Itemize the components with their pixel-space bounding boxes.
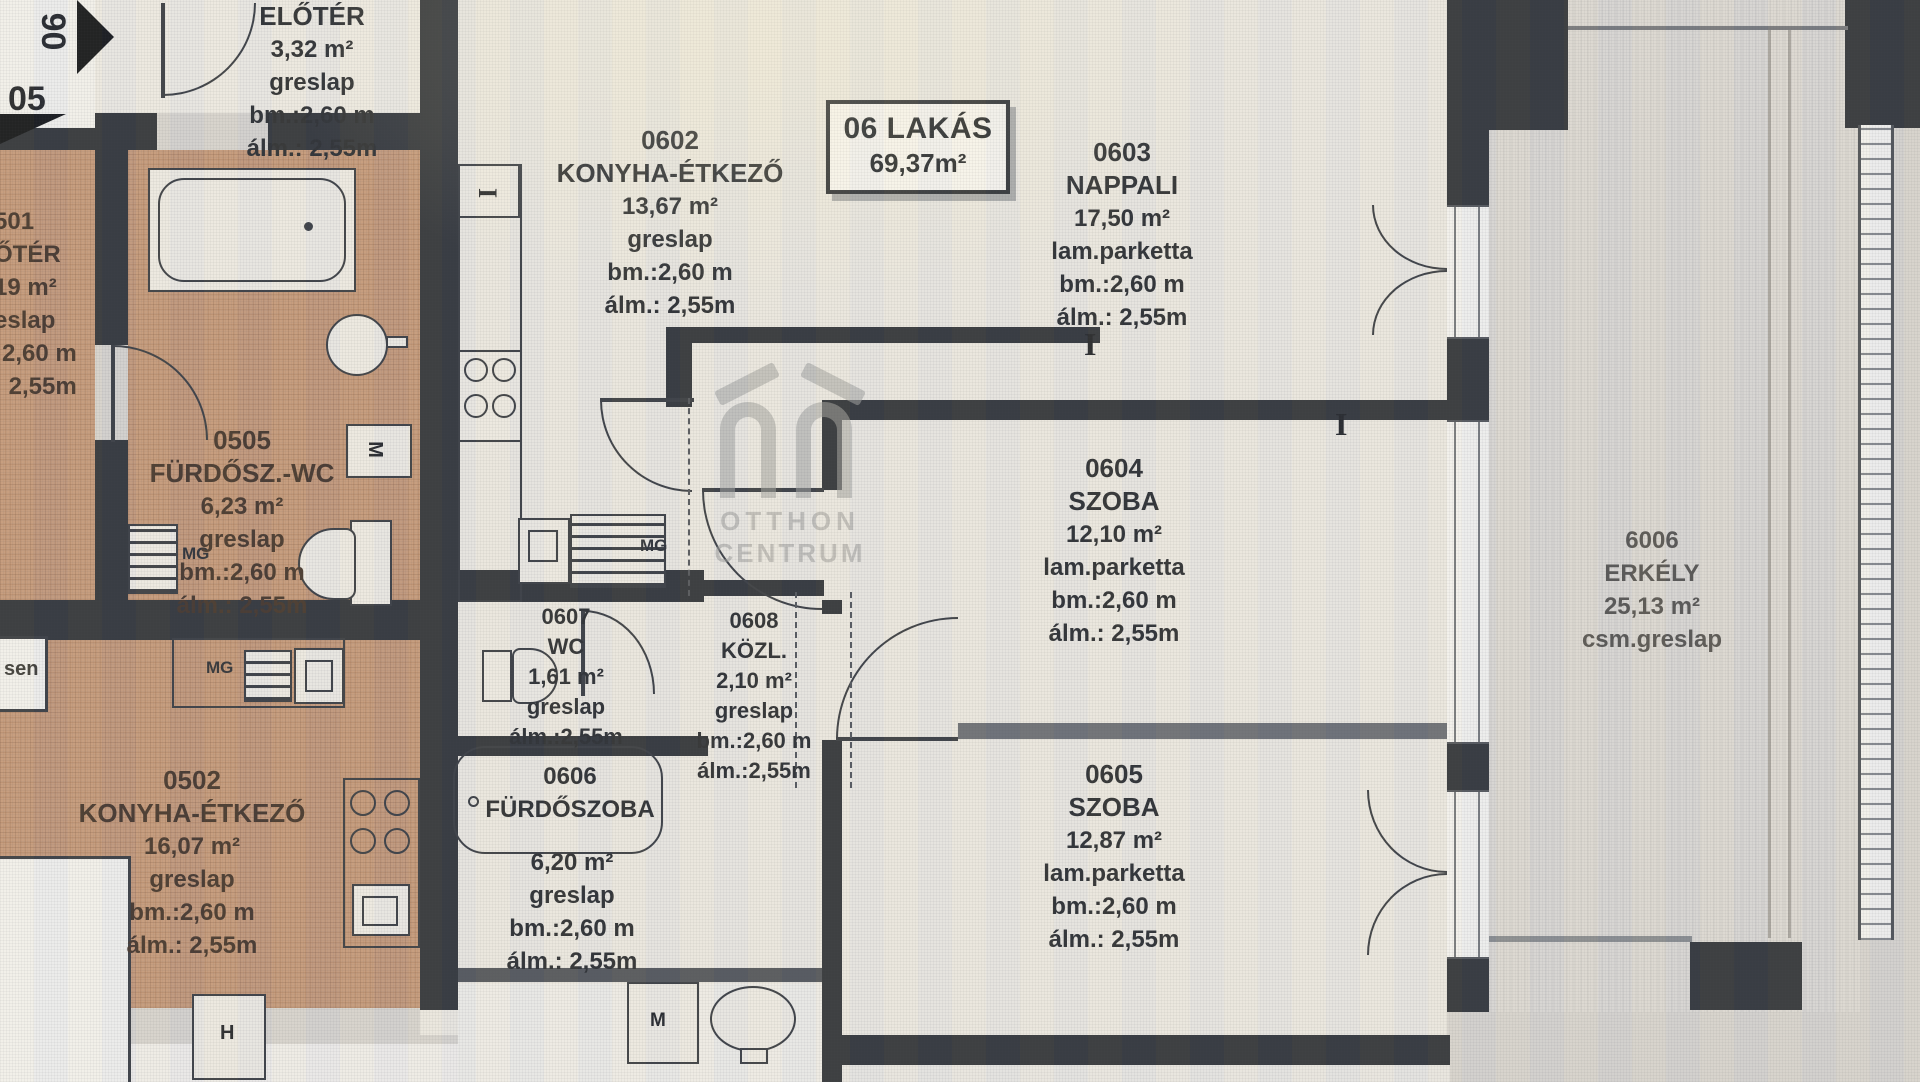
room-label-0602: 0602 KONYHA-ÉTKEZŐ 13,67 m² greslap bm.:… (557, 124, 784, 322)
room-code-partial: 501 (0, 205, 77, 238)
room-area: 12,10 m² (1043, 518, 1184, 551)
room-floor: greslap (150, 523, 335, 556)
room-name: ERKÉLY (1582, 557, 1722, 590)
wall-left-upper (95, 150, 128, 345)
room-label-0606-details: 6,20 m² greslap bm.:2,60 m álm.: 2,55m (507, 846, 638, 978)
room-floor-partial: eslap (0, 304, 77, 337)
wall-0605-west (822, 740, 842, 1082)
room-floor: greslap (79, 863, 306, 896)
balcony-railing (1858, 125, 1894, 940)
room-label-0501-partial: 501 ŐTÉR 19 m² eslap :2,60 m : 2,55m (0, 205, 77, 403)
room-code: 0604 (1043, 452, 1184, 485)
room-area: 6,20 m² (507, 846, 638, 879)
room-code: 0603 (1051, 136, 1192, 169)
room-bm: bm.:2,60 m (507, 912, 638, 945)
room-code: 0607 (509, 602, 623, 632)
burner-0602-4 (492, 394, 516, 418)
balcony-top-line (1568, 26, 1848, 30)
burner-0502-3 (350, 828, 376, 854)
balcony-rail-line-b (1788, 30, 1791, 938)
room-bm: bm.:2,60 m (697, 726, 812, 756)
room-floor: lam.parketta (1043, 551, 1184, 584)
room-name: ELŐTÉR (247, 0, 378, 33)
wall-right-4 (1447, 955, 1489, 1012)
sink-unit-0602-basin (528, 530, 558, 562)
room-label-0608: 0608 KÖZL. 2,10 m² greslap bm.:2,60 m ál… (697, 606, 812, 786)
bathtub-drain-dot (304, 222, 313, 231)
room-bm: bm.:2,60 m (150, 556, 335, 589)
room-name: KONYHA-ÉTKEZŐ (79, 797, 306, 830)
room-code: 0606 (485, 760, 654, 793)
room-floor: greslap (247, 66, 378, 99)
toilet-0607-tank (482, 650, 512, 702)
room-alm: álm.: 2,55m (507, 945, 638, 978)
wall-right-3 (1447, 740, 1489, 790)
room-name: KONYHA-ÉTKEZŐ (557, 157, 784, 190)
room-bm: bm.:2,60 m (1043, 890, 1184, 923)
wall-entry-left (95, 113, 157, 150)
sink-0505 (326, 314, 388, 376)
room-code: 0505 (150, 424, 335, 457)
window-mid (1447, 420, 1489, 744)
watermark-logo-arch-c (796, 402, 852, 498)
fridge-i-glyph: I (472, 188, 502, 198)
room-label-0505: 0505 FÜRDŐSZ.-WC 6,23 m² greslap bm.:2,6… (150, 424, 335, 622)
wall-band-upper (666, 327, 1100, 343)
room-name: SZOBA (1043, 791, 1184, 824)
wall-kitchen-column (420, 0, 458, 1010)
floor-bottom-strip-right (837, 1065, 1450, 1082)
room-name: KÖZL. (697, 636, 812, 666)
wall-0605-bottom (837, 1035, 1450, 1065)
i-beam-symbol-b: I (1335, 406, 1347, 443)
washer-m-glyph-0606: M (650, 1010, 666, 1032)
room-area: 16,07 m² (79, 830, 306, 863)
toilet-0505-tank (350, 520, 392, 606)
room-area: 3,32 m² (247, 33, 378, 66)
room-alm: álm.:2,55m (509, 722, 623, 752)
room-floor: lam.parketta (1043, 857, 1184, 890)
unit-title: 06 LAKÁS (830, 112, 1006, 146)
mg-label-0602: MG (640, 536, 667, 556)
room-label-0607: 0607 WC 1,61 m² greslap álm.:2,55m (509, 602, 623, 752)
room-alm: álm.: 2,55m (247, 132, 378, 165)
pillar-top-right-corner (1845, 0, 1920, 128)
room-area-partial: 19 m² (0, 271, 77, 304)
sink-0505-tap (386, 336, 408, 348)
room-name: FÜRDŐSZOBA (485, 793, 654, 826)
sink-0606-oval (710, 986, 796, 1052)
room-name: NAPPALI (1051, 169, 1192, 202)
room-floor: csm.greslap (1582, 623, 1722, 656)
room-area: 1,61 m² (509, 662, 623, 692)
sink-unit-0502-basin (305, 660, 333, 692)
room-label-eloter06: ELŐTÉR 3,32 m² greslap bm.:2,60 m álm.: … (247, 0, 378, 165)
floor-balcony (1489, 0, 1862, 1012)
room-code: 0502 (79, 764, 306, 797)
sink-0606-stub (740, 1048, 768, 1064)
watermark-chevron-left (714, 362, 780, 406)
burner-0602-2 (492, 358, 516, 382)
room-bm: bm.:2,60 m (557, 256, 784, 289)
room-bm: bm.:2,60 m (1051, 268, 1192, 301)
opening-dashed-kozl-b (850, 592, 852, 788)
room-floor: greslap (509, 692, 623, 722)
unit-area: 69,37m² (830, 148, 1006, 179)
room-bm: bm.:2,60 m (247, 99, 378, 132)
room-area: 25,13 m² (1582, 590, 1722, 623)
unit-05-marker: 05 (8, 80, 46, 119)
room-alm: álm.: 2,55m (1051, 301, 1192, 334)
room-floor: lam.parketta (1051, 235, 1192, 268)
room-alm-partial: : 2,55m (0, 370, 77, 403)
dishwasher-0502 (244, 650, 292, 702)
unit-06-arrow-icon (77, 0, 114, 74)
burner-0502-1 (350, 790, 376, 816)
room-area: 6,23 m² (150, 490, 335, 523)
room-floor: greslap (507, 879, 638, 912)
wall-0604-top (822, 400, 1450, 420)
burner-0502-4 (384, 828, 410, 854)
sen-label: sen (4, 658, 38, 681)
room-area: 2,10 m² (697, 666, 812, 696)
room-bm: bm.:2,60 m (1043, 584, 1184, 617)
balcony-rail-line-a (1768, 30, 1771, 938)
room-code: 6006 (1582, 524, 1722, 557)
bathtub-0505-inner (158, 178, 346, 282)
room-label-0606-name: 0606 FÜRDŐSZOBA (485, 760, 654, 826)
room-alm: álm.:2,55m (697, 756, 812, 786)
door-leaf-0602-kozl (600, 398, 694, 402)
room-area: 17,50 m² (1051, 202, 1192, 235)
room-alm: álm.: 2,55m (79, 929, 306, 962)
balcony-door-nappali-window (1447, 205, 1489, 339)
wall-right-2 (1447, 335, 1489, 420)
room-alm: álm.: 2,55m (1043, 923, 1184, 956)
room-area: 13,67 m² (557, 190, 784, 223)
washer-m-glyph-0505: M (363, 441, 386, 458)
burner-0502-2 (384, 790, 410, 816)
pillar-balcony-top (1480, 0, 1568, 130)
room-bm: bm.:2,60 m (79, 896, 306, 929)
door-leaf-0605 (836, 737, 958, 741)
room-name: SZOBA (1043, 485, 1184, 518)
unit-summary-box: 06 LAKÁS 69,37m² (826, 100, 1010, 194)
room-name: WC (509, 632, 623, 662)
door-leaf-0505 (111, 345, 115, 442)
room-code: 0608 (697, 606, 812, 636)
burner-0602-3 (464, 394, 488, 418)
otthon-centrum-watermark: OTTHON CENTRUM (690, 350, 890, 570)
room-floor: greslap (697, 696, 812, 726)
h-glyph: H (220, 1022, 234, 1045)
wall-kozl-east-foot (822, 600, 842, 614)
room-name-partial: ŐTÉR (0, 238, 77, 271)
room-alm: álm.: 2,55m (150, 589, 335, 622)
floor-plan: M MG I MG M MG H I I 06 05 sen 06 LAKÁS (0, 0, 1920, 1082)
room-label-0605: 0605 SZOBA 12,87 m² lam.parketta bm.:2,6… (1043, 758, 1184, 956)
door-leaf-entry (161, 3, 165, 98)
watermark-line2: CENTRUM (690, 538, 890, 569)
room-code: 0605 (1043, 758, 1184, 791)
wall-0604-0605-partition (958, 723, 1450, 739)
room-label-0502: 0502 KONYHA-ÉTKEZŐ 16,07 m² greslap bm.:… (79, 764, 306, 962)
mg-label-0502: MG (206, 658, 233, 678)
room-alm: álm.: 2,55m (557, 289, 784, 322)
burner-0602-1 (464, 358, 488, 382)
pillar-balcony-bottom (1690, 942, 1802, 1010)
room-name: FÜRDŐSZ.-WC (150, 457, 335, 490)
watermark-line1: OTTHON (690, 506, 890, 537)
room-bm-partial: :2,60 m (0, 337, 77, 370)
watermark-chevron-right (800, 362, 866, 406)
room-area: 12,87 m² (1043, 824, 1184, 857)
sink-0502-lower-basin (362, 896, 398, 926)
watermark-logo-arch-o (720, 402, 776, 498)
room-label-0604: 0604 SZOBA 12,10 m² lam.parketta bm.:2,6… (1043, 452, 1184, 650)
room-floor: greslap (557, 223, 784, 256)
room-label-erkely: 6006 ERKÉLY 25,13 m² csm.greslap (1582, 524, 1722, 656)
balcony-door-0605-window (1447, 790, 1489, 959)
room-code: 0602 (557, 124, 784, 157)
unit-06-marker: 06 (35, 13, 74, 51)
bathtub-0606-tap-dot (468, 796, 479, 807)
room-label-0603: 0603 NAPPALI 17,50 m² lam.parketta bm.:2… (1051, 136, 1192, 334)
room-alm: álm.: 2,55m (1043, 617, 1184, 650)
